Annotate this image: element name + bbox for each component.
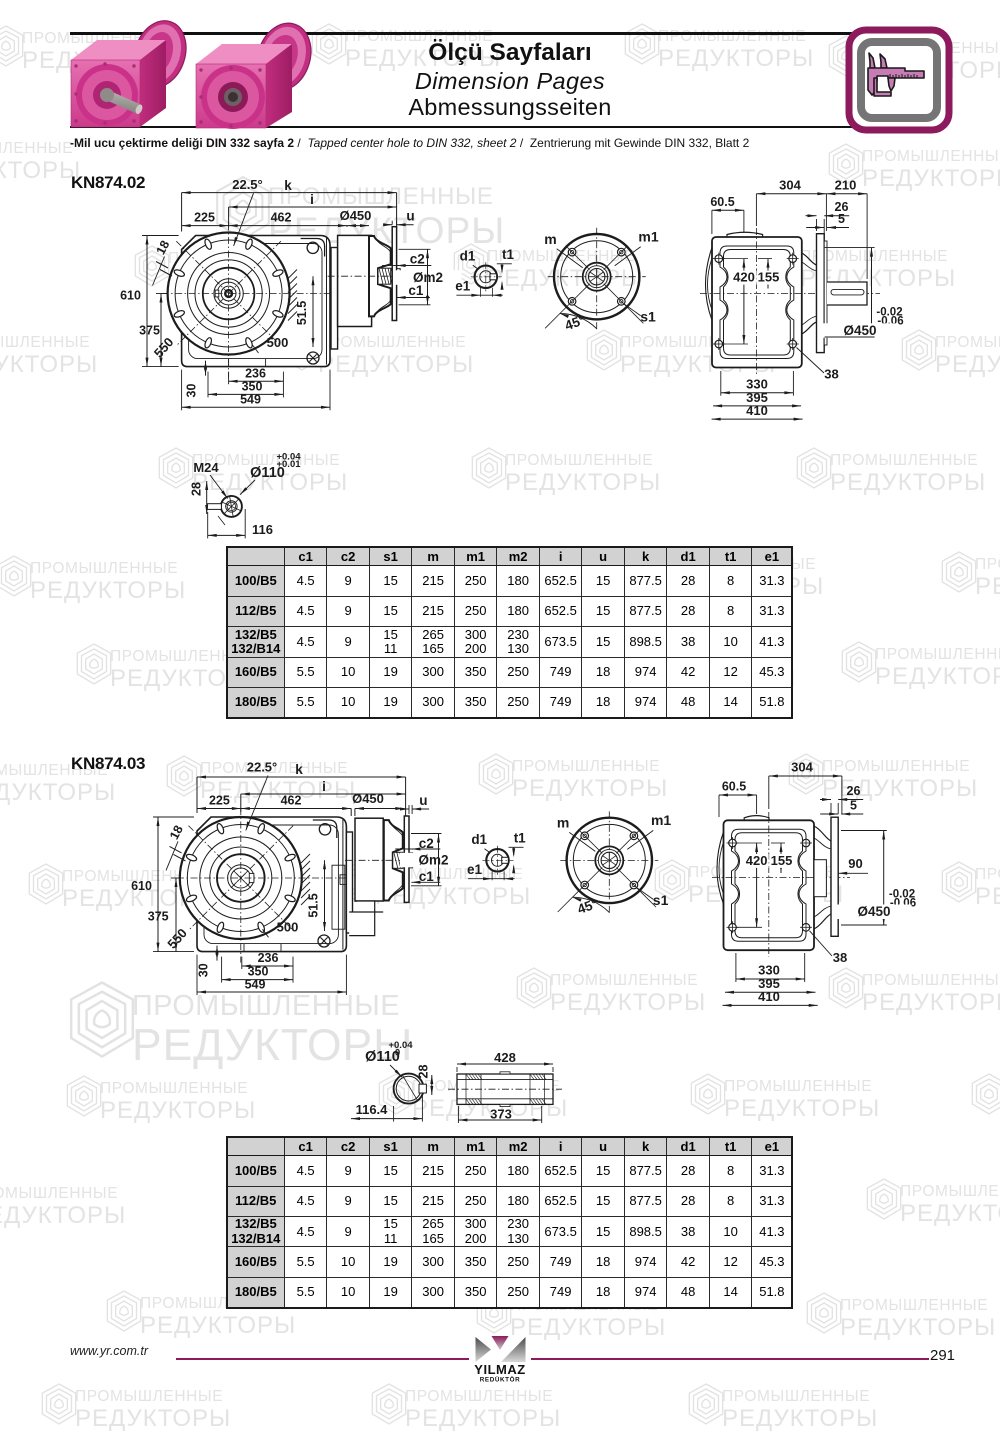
- svg-text:c2: c2: [410, 252, 425, 267]
- svg-text:550: 550: [164, 925, 190, 951]
- svg-text:51.5: 51.5: [307, 893, 321, 917]
- svg-text:0: 0: [395, 1048, 400, 1059]
- svg-text:549: 549: [245, 977, 266, 991]
- svg-text:225: 225: [209, 793, 230, 807]
- svg-text:116: 116: [252, 522, 273, 537]
- svg-text:5: 5: [850, 799, 857, 813]
- svg-text:225: 225: [194, 210, 215, 224]
- svg-text:155: 155: [758, 270, 780, 285]
- svg-text:t1: t1: [502, 247, 514, 262]
- svg-text:38: 38: [833, 950, 847, 965]
- svg-text:210: 210: [835, 177, 857, 192]
- svg-text:410: 410: [758, 989, 780, 1004]
- svg-text:+0.01: +0.01: [276, 459, 301, 470]
- svg-text:5: 5: [838, 212, 845, 226]
- svg-text:18: 18: [154, 238, 173, 257]
- svg-text:M24: M24: [193, 460, 219, 475]
- svg-text:i: i: [322, 779, 326, 794]
- svg-text:22.5°: 22.5°: [247, 760, 278, 775]
- svg-text:236: 236: [258, 951, 279, 965]
- svg-text:k: k: [295, 762, 303, 777]
- svg-text:350: 350: [242, 380, 263, 394]
- svg-text:155: 155: [771, 853, 793, 868]
- svg-text:26: 26: [847, 784, 861, 798]
- svg-text:+0.04: +0.04: [388, 1040, 413, 1051]
- svg-text:22.5°: 22.5°: [232, 177, 263, 192]
- svg-text:d1: d1: [471, 832, 487, 847]
- svg-text:410: 410: [746, 403, 768, 418]
- svg-text:e1: e1: [455, 278, 471, 293]
- svg-text:375: 375: [139, 324, 160, 338]
- svg-text:s1: s1: [640, 309, 656, 325]
- svg-text:d1: d1: [460, 249, 476, 264]
- svg-text:m: m: [544, 231, 556, 247]
- svg-text:420: 420: [746, 853, 768, 868]
- svg-text:m1: m1: [638, 229, 658, 245]
- svg-text:u: u: [419, 793, 427, 808]
- svg-text:462: 462: [281, 793, 302, 807]
- svg-text:YILMAZ: YILMAZ: [474, 1362, 525, 1377]
- svg-text:k: k: [284, 178, 292, 193]
- svg-text:90: 90: [848, 856, 862, 871]
- svg-text:462: 462: [271, 210, 292, 224]
- svg-text:REDÜKTÖR: REDÜKTÖR: [480, 1375, 520, 1384]
- svg-text:28: 28: [190, 482, 204, 496]
- svg-text:m1: m1: [651, 812, 671, 828]
- svg-text:549: 549: [240, 393, 261, 407]
- svg-text:e1: e1: [467, 862, 483, 877]
- svg-text:30: 30: [185, 384, 199, 398]
- svg-text:610: 610: [131, 879, 152, 893]
- svg-text:304: 304: [791, 760, 813, 775]
- svg-text:610: 610: [120, 289, 141, 303]
- svg-text:236: 236: [245, 366, 266, 380]
- svg-text:60.5: 60.5: [722, 780, 746, 794]
- svg-text:18: 18: [167, 823, 186, 842]
- svg-text:51.5: 51.5: [295, 301, 309, 325]
- svg-text:375: 375: [148, 909, 169, 923]
- svg-text:c1: c1: [408, 283, 424, 298]
- svg-text:28: 28: [417, 1065, 431, 1079]
- svg-text:t1: t1: [514, 830, 526, 845]
- svg-text:500: 500: [277, 919, 299, 934]
- svg-text:Ø450: Ø450: [843, 323, 876, 338]
- svg-text:60.5: 60.5: [710, 195, 734, 209]
- svg-text:Øm2: Øm2: [418, 852, 448, 867]
- svg-text:Ø450: Ø450: [352, 791, 384, 806]
- svg-text:s1: s1: [653, 892, 669, 908]
- svg-text:373: 373: [490, 1106, 512, 1121]
- svg-text:304: 304: [779, 177, 801, 192]
- svg-text:u: u: [406, 209, 414, 224]
- svg-text:550: 550: [151, 334, 177, 360]
- svg-text:Ø450: Ø450: [340, 208, 372, 223]
- svg-text:30: 30: [196, 963, 210, 977]
- svg-text:m: m: [557, 815, 569, 831]
- svg-text:500: 500: [267, 335, 289, 350]
- svg-text:38: 38: [824, 367, 838, 382]
- svg-text:116.4: 116.4: [356, 1102, 389, 1117]
- svg-text:428: 428: [494, 1050, 516, 1065]
- svg-text:420: 420: [733, 270, 755, 285]
- svg-text:Ø450: Ø450: [857, 904, 890, 919]
- svg-text:i: i: [310, 192, 314, 207]
